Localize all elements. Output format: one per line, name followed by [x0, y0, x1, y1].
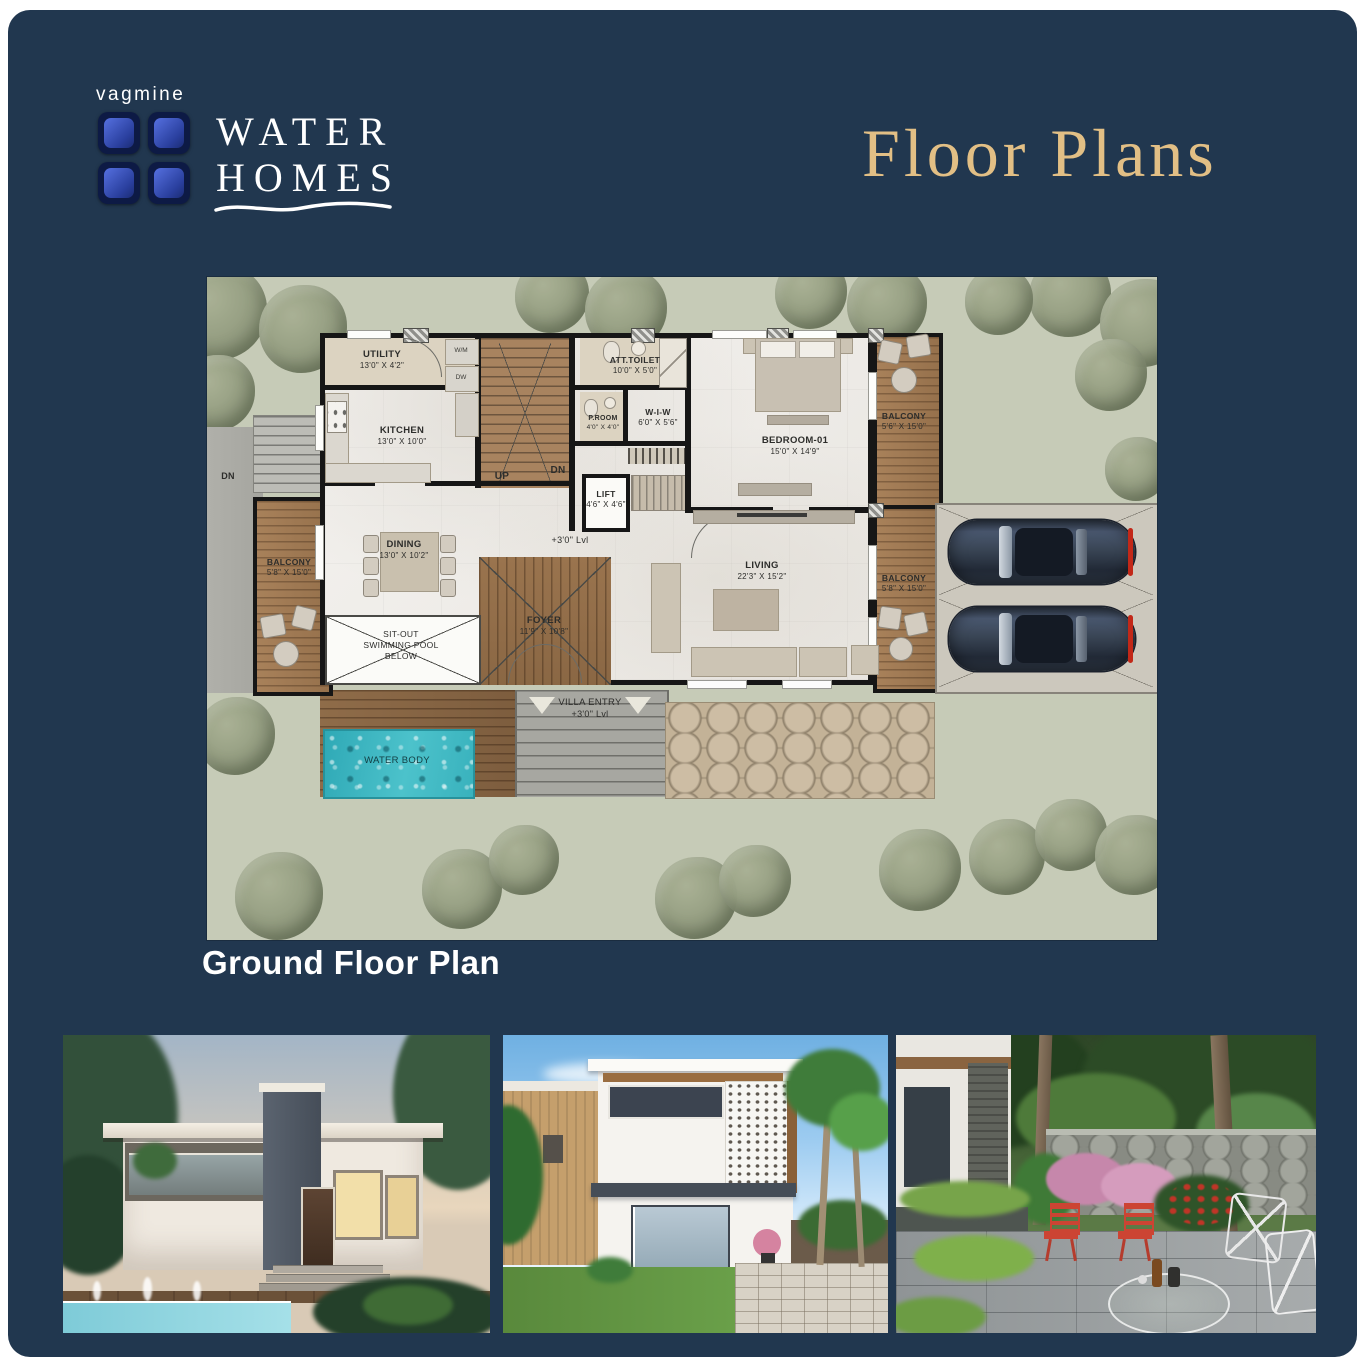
fountain-jet	[193, 1281, 201, 1301]
coffee-table	[713, 589, 779, 631]
chair	[905, 333, 931, 358]
jali-screen	[725, 1081, 789, 1195]
small-stair	[631, 475, 687, 511]
ground-floor-plan: W/M DW	[207, 277, 1157, 940]
window	[315, 405, 324, 451]
decanter-icon	[1168, 1267, 1180, 1287]
grass	[914, 1235, 1034, 1281]
bedroom-console	[738, 483, 812, 496]
wall-hatch	[868, 503, 884, 518]
stairs-up-label: UP	[487, 471, 517, 484]
room-label-living: LIVING22'3" X 15'2"	[712, 560, 812, 582]
fountain-jet	[93, 1281, 101, 1301]
window	[687, 680, 747, 689]
room-label-lift: LIFT4'6" X 4'6"	[581, 489, 631, 510]
kitchen-counter	[325, 463, 431, 483]
room-label-att-toilet: ATT.TOILET10'0" X 5'0"	[590, 355, 680, 376]
brand-logo-icon	[98, 112, 190, 204]
chair	[440, 579, 456, 597]
wall	[569, 333, 575, 531]
building-layer: W/M DW	[207, 277, 1157, 940]
red-chair	[1044, 1203, 1080, 1261]
cup-icon	[1138, 1275, 1147, 1284]
car-icon	[949, 607, 1135, 671]
stairs-dn-label: DN	[543, 465, 573, 478]
room-label-balcony-right: BALCONY5'8" X 15'0"	[873, 573, 935, 594]
chair	[259, 613, 286, 639]
window	[902, 1087, 950, 1187]
plan-caption: Ground Floor Plan	[202, 944, 500, 982]
wave-icon	[214, 200, 392, 216]
table	[273, 641, 299, 667]
balcony-right	[873, 505, 943, 693]
pillow	[760, 341, 796, 358]
sink	[604, 397, 616, 409]
chair	[903, 611, 929, 637]
wall	[425, 481, 480, 486]
chair	[363, 579, 379, 597]
canopy	[591, 1183, 796, 1197]
sofa	[691, 647, 797, 677]
brand-name-line1: WATER	[216, 108, 394, 155]
red-chair	[1118, 1203, 1154, 1261]
water-body-label: WATER BODY	[337, 755, 457, 767]
level-label: +3'0" Lvl	[535, 535, 605, 546]
loveseat	[799, 647, 847, 677]
bottle-icon	[1152, 1259, 1162, 1287]
room-label-balcony-left: BALCONY5'8" X 15'0"	[253, 557, 325, 578]
room-label-utility: UTILITY13'0" X 4'2"	[337, 349, 427, 371]
room-label-kitchen: KITCHEN13'0" X 10'0"	[352, 425, 452, 447]
sofa	[651, 563, 681, 653]
hedge	[900, 1181, 1030, 1217]
stove	[327, 401, 347, 433]
exterior-stair	[253, 415, 322, 493]
window	[782, 680, 832, 689]
nightstand	[840, 338, 853, 354]
room-label-dining: DINING13'0" X 10'2"	[359, 539, 449, 561]
bed-bench	[767, 415, 829, 425]
front-door	[301, 1187, 335, 1267]
lit-window	[333, 1170, 383, 1240]
stair-cross	[499, 343, 551, 483]
table	[889, 637, 913, 661]
room-label-balcony-top: BALCONY5'6" X 15'0"	[873, 411, 935, 432]
car-icon	[949, 520, 1135, 584]
wardrobe	[628, 448, 687, 464]
fridge	[455, 393, 479, 437]
pool	[63, 1301, 291, 1333]
room-label-bedroom: BEDROOM-0115'0" X 14'9"	[745, 435, 845, 457]
brand-name-line2: HOMES	[216, 154, 401, 201]
nightstand	[743, 338, 756, 354]
red-flowers-icon	[1166, 1181, 1236, 1225]
wm-label: W/M	[445, 348, 477, 355]
wall	[575, 441, 690, 446]
chair	[877, 339, 903, 365]
dw-label: DW	[445, 375, 477, 382]
fountain-jet	[143, 1277, 152, 1301]
table	[891, 367, 917, 393]
sitout-label: SIT-OUTSWIMMING POOLBELOW	[341, 629, 461, 662]
plant-icon	[133, 1143, 177, 1179]
pillow	[799, 341, 835, 358]
tv	[737, 513, 807, 517]
paver-path	[735, 1263, 888, 1333]
photo-garden-courtyard	[896, 1035, 1316, 1333]
photo-villa-dusk-pool	[63, 1035, 490, 1333]
clerestory-window	[608, 1085, 724, 1119]
exterior-dn-label: DN	[213, 471, 243, 482]
chair	[878, 606, 903, 631]
page-title: Floor Plans	[862, 114, 1218, 193]
sink	[631, 341, 646, 356]
wire-chair	[1264, 1229, 1316, 1316]
brand-wordmark: vagmine	[96, 84, 185, 106]
photo-villa-day	[503, 1035, 888, 1333]
room-label-wiw: W-I-W6'0" X 5'6"	[630, 407, 686, 428]
lit-window	[385, 1175, 419, 1239]
stone-paving	[665, 702, 935, 799]
window	[347, 330, 391, 339]
armchair	[851, 645, 879, 675]
room-label-p-room: P.ROOM4'0" X 4'0"	[578, 415, 628, 432]
grass	[896, 1297, 986, 1333]
palm-crown-icon	[829, 1093, 888, 1151]
villa-entry-label: VILLA ENTRY+3'0" Lvl	[530, 697, 650, 721]
room-label-foyer: FOYER11'9" X 10'8"	[499, 615, 589, 637]
